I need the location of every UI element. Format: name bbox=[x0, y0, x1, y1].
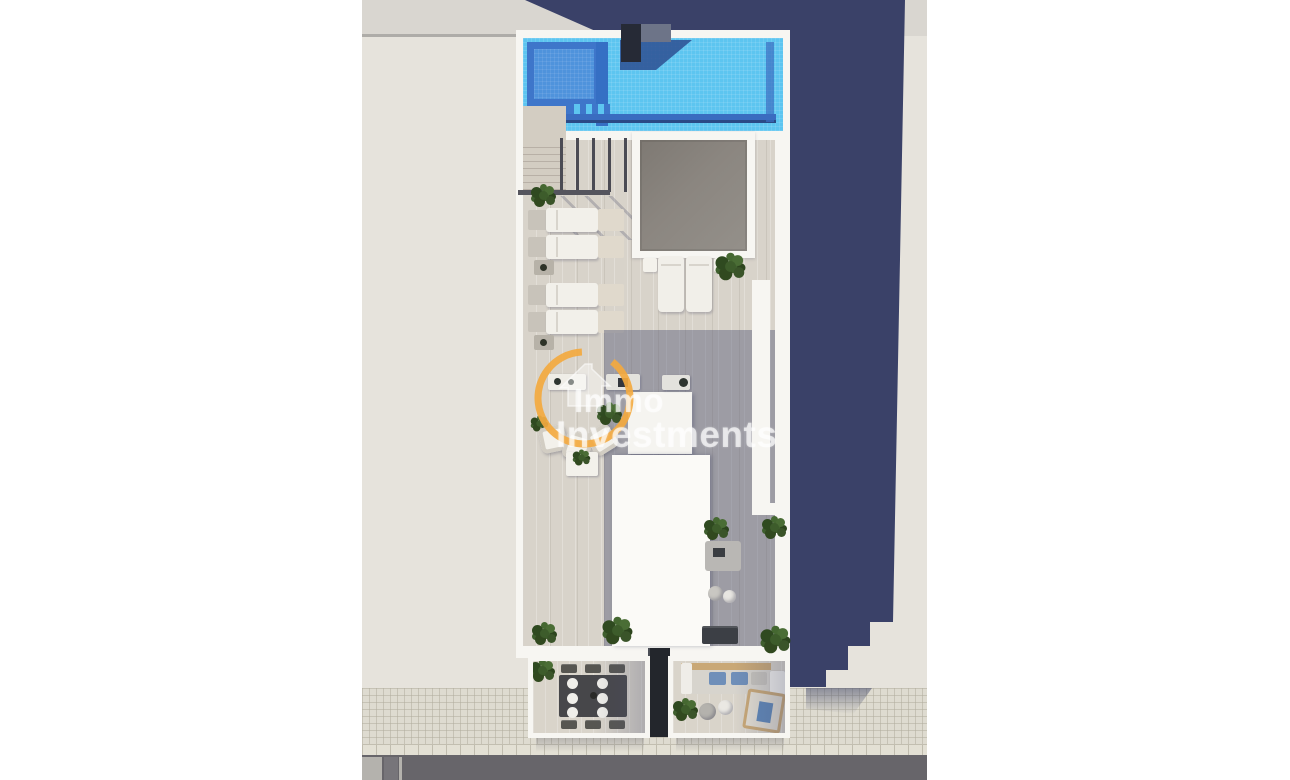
planter-bush bbox=[761, 626, 790, 653]
lounger-towel bbox=[598, 236, 624, 258]
lounger-cushion bbox=[546, 235, 598, 259]
terrace-shade-overlay bbox=[533, 661, 645, 733]
chimney bbox=[621, 24, 641, 62]
lounger-frame bbox=[528, 285, 548, 305]
neighbor-roof-ridge-line bbox=[362, 34, 516, 37]
lounger-towel bbox=[598, 284, 624, 306]
planter-bush bbox=[596, 400, 624, 428]
lounger-frame bbox=[528, 237, 548, 257]
sun-lounger bbox=[658, 256, 684, 312]
lounger-frame bbox=[528, 210, 548, 230]
side-table bbox=[534, 260, 554, 275]
pouf bbox=[723, 590, 736, 603]
lounger-cushion bbox=[546, 208, 598, 232]
lounger-cushion bbox=[546, 283, 598, 307]
outdoor-counter bbox=[548, 374, 586, 390]
terrace-shadow-right bbox=[676, 738, 784, 752]
side-table bbox=[534, 335, 554, 350]
stair-railing-posts bbox=[560, 138, 638, 192]
dining-terrace bbox=[528, 656, 650, 738]
lounge-terrace-deck bbox=[673, 661, 785, 733]
terrace-shadow-left bbox=[536, 738, 644, 752]
sun-lounger-row bbox=[528, 235, 624, 259]
terrace-shade-overlay bbox=[673, 661, 785, 733]
planter-bush bbox=[718, 254, 744, 280]
counter-item bbox=[554, 378, 561, 385]
outdoor-table bbox=[606, 374, 640, 390]
coffee-table bbox=[566, 452, 598, 476]
road-slab bbox=[399, 757, 402, 780]
terrace-gap-recess bbox=[648, 648, 670, 737]
road-slab bbox=[384, 757, 398, 780]
potted-plant bbox=[572, 448, 592, 468]
planter-bush bbox=[531, 183, 557, 209]
pouf bbox=[708, 586, 723, 601]
dining-terrace-deck bbox=[533, 661, 645, 733]
outdoor-table bbox=[662, 375, 690, 390]
planter-bush bbox=[602, 616, 633, 645]
daybed bbox=[705, 541, 741, 571]
lounger-cushion bbox=[546, 310, 598, 334]
rooftop-building bbox=[516, 30, 790, 658]
potted-plant-small bbox=[679, 378, 688, 387]
sun-lounger-row bbox=[528, 208, 624, 232]
pool-sun-ledge-inner bbox=[534, 49, 594, 99]
daybed-cushion bbox=[713, 548, 725, 557]
table-item bbox=[618, 378, 628, 387]
road-slab bbox=[362, 757, 382, 780]
planter-bush bbox=[761, 514, 788, 541]
lounger-frame bbox=[528, 312, 548, 332]
skylight-frame bbox=[632, 132, 755, 258]
lounge-terrace bbox=[668, 656, 790, 738]
sun-lounger bbox=[686, 256, 712, 312]
side-table bbox=[643, 258, 657, 272]
chimney-cap bbox=[641, 24, 671, 42]
sun-lounger-row bbox=[528, 283, 624, 307]
planter-bush bbox=[531, 620, 558, 647]
render-canvas: Immo Investments bbox=[0, 0, 1290, 780]
skylight-glass bbox=[640, 140, 747, 251]
counter-item bbox=[568, 379, 574, 385]
parapet-wall bbox=[752, 280, 770, 513]
stairwell-roof-upper bbox=[628, 392, 692, 454]
planter-bush bbox=[704, 516, 730, 542]
bench bbox=[702, 626, 738, 644]
lounger-towel bbox=[598, 209, 624, 231]
asphalt-road bbox=[362, 755, 927, 780]
pool-right-shadow bbox=[766, 42, 774, 122]
